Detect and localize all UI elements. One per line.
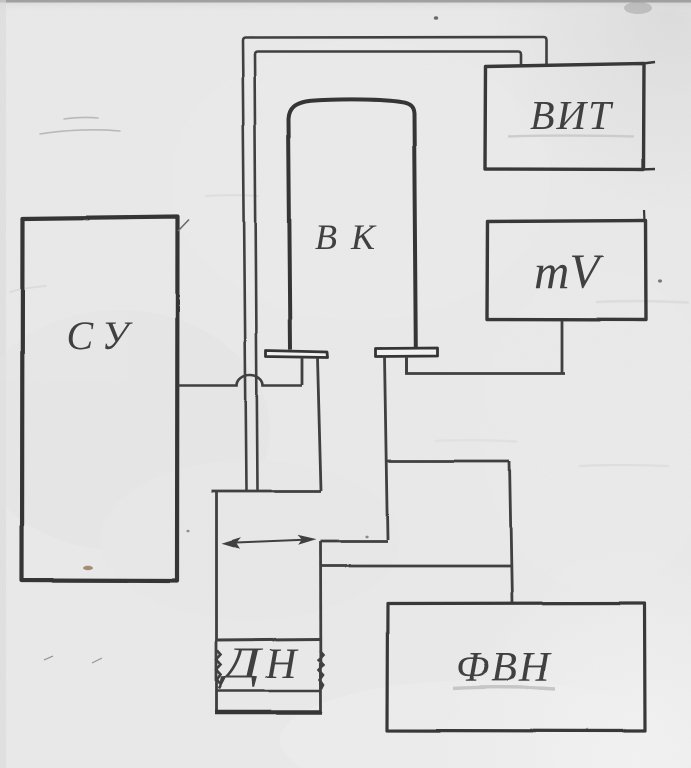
svg-text:СУ: СУ bbox=[66, 313, 137, 358]
svg-text:ВИТ: ВИТ bbox=[530, 92, 615, 138]
svg-text:mV: mV bbox=[534, 244, 604, 299]
svg-text:Д: Д bbox=[219, 639, 264, 688]
svg-text:ВК: ВК bbox=[315, 217, 389, 257]
svg-text:ФВН: ФВН bbox=[456, 645, 552, 691]
svg-text:Н: Н bbox=[265, 641, 299, 688]
